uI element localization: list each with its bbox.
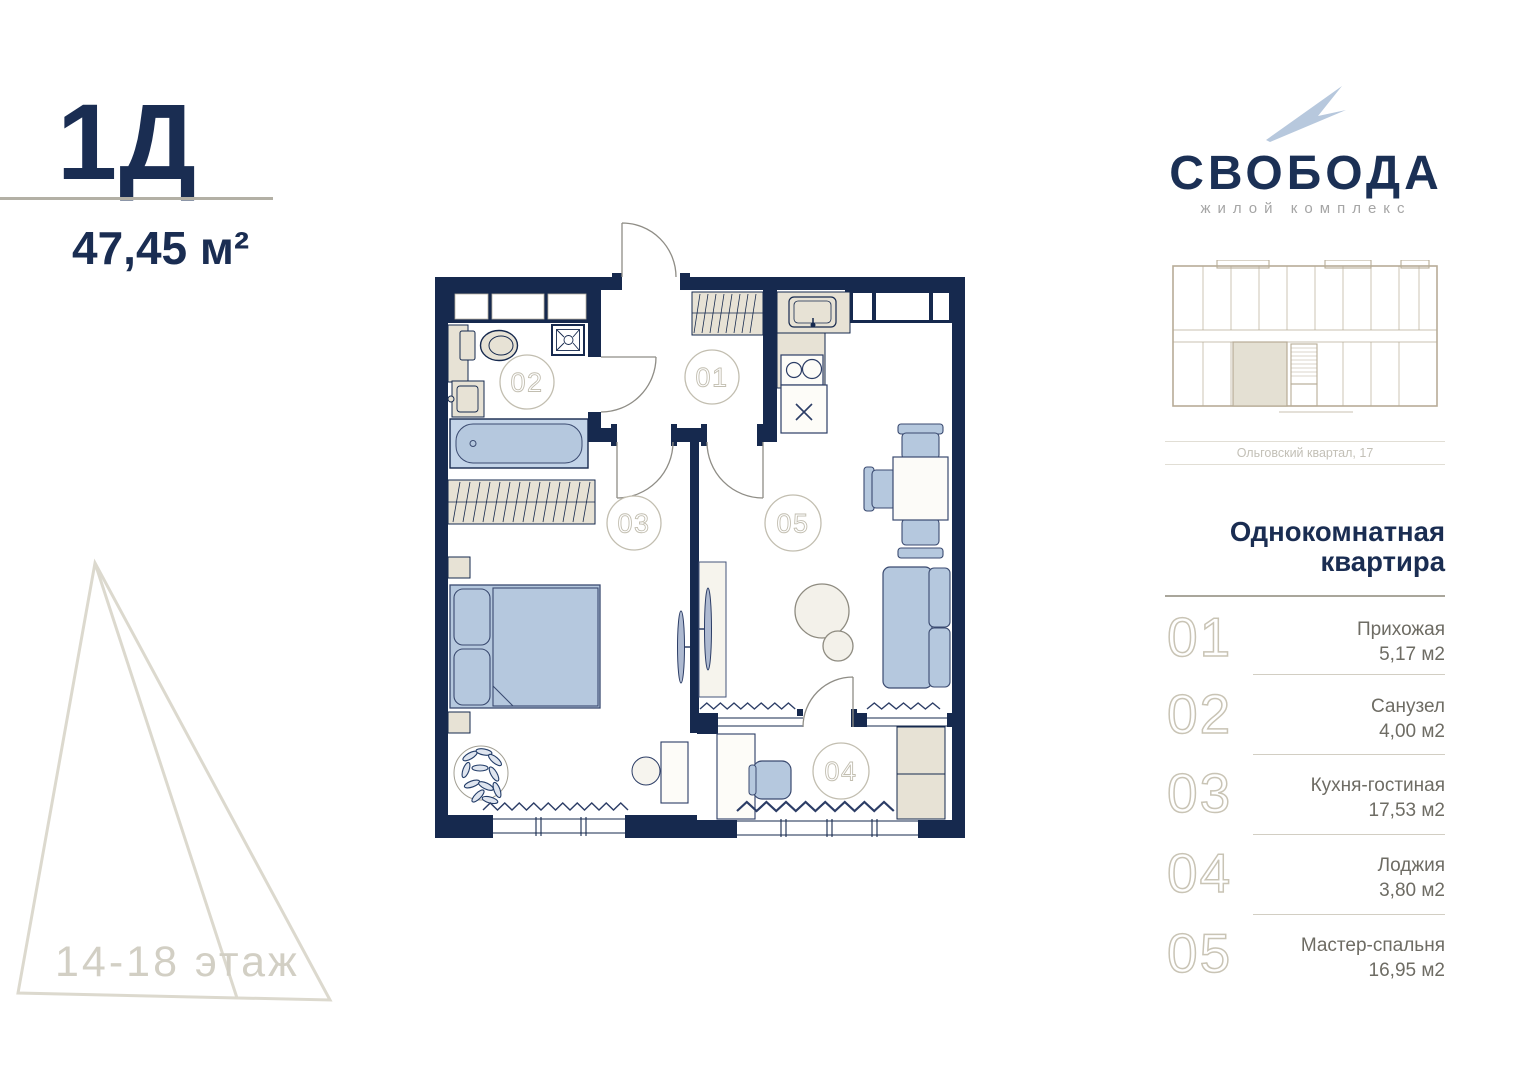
building-address-caption: Ольговский квартал, 17 bbox=[1165, 446, 1445, 460]
room-number: 04 bbox=[1167, 844, 1232, 902]
room-separator bbox=[1253, 834, 1445, 835]
highlighted-unit bbox=[1233, 342, 1287, 406]
plan-label-02: 02 bbox=[510, 368, 543, 398]
flat-plan-flyer: 1Д 47,45 м² 14-18 этаж СВОБОДА жилой ком… bbox=[0, 0, 1527, 1080]
room-area: 4,00 м2 bbox=[1371, 719, 1445, 744]
room-area: 16,95 м2 bbox=[1301, 958, 1445, 983]
tv-wall bbox=[678, 562, 727, 697]
logo-title: СВОБОДА bbox=[1165, 146, 1447, 201]
room-area: 17,53 м2 bbox=[1311, 798, 1445, 823]
room-name: Мастер-спальня bbox=[1301, 933, 1445, 958]
room-name: Санузел bbox=[1371, 694, 1445, 719]
room-area: 5,17 м2 bbox=[1357, 642, 1445, 667]
plan-label-05: 05 bbox=[776, 509, 809, 539]
room-separator bbox=[1253, 674, 1445, 675]
room-row-01: 01 Прихожая 5,17 м2 bbox=[1165, 608, 1445, 684]
logo-subtitle: жилой комплекс bbox=[1165, 200, 1447, 217]
room-number: 05 bbox=[1167, 924, 1232, 982]
apartment-type-heading: Однокомнатная квартира bbox=[1165, 517, 1445, 577]
living-room-furniture bbox=[795, 424, 950, 688]
room-row-04: 04 Лоджия 3,80 м2 bbox=[1165, 844, 1445, 920]
plan-label-01: 01 bbox=[695, 363, 728, 393]
room-separator bbox=[1253, 754, 1445, 755]
logo-swoosh-icon bbox=[1256, 84, 1352, 144]
unit-total-area: 47,45 м² bbox=[72, 221, 249, 275]
room-number: 03 bbox=[1167, 764, 1232, 822]
building-key-plan bbox=[1163, 260, 1447, 418]
caption-bottom-line bbox=[1165, 464, 1445, 465]
room-area: 3,80 м2 bbox=[1378, 878, 1445, 903]
room-row-02: 02 Санузел 4,00 м2 bbox=[1165, 685, 1445, 761]
unit-code: 1Д bbox=[57, 88, 198, 196]
room-number: 02 bbox=[1167, 685, 1232, 743]
room-row-03: 03 Кухня-гостиная 17,53 м2 bbox=[1165, 764, 1445, 840]
room-name: Кухня-гостиная bbox=[1311, 773, 1445, 798]
plan-label-04: 04 bbox=[824, 757, 857, 787]
room-name: Лоджия bbox=[1378, 853, 1445, 878]
room-name: Прихожая bbox=[1357, 617, 1445, 642]
apartment-type-line2: квартира bbox=[1165, 547, 1445, 577]
room-number: 01 bbox=[1167, 608, 1232, 666]
apartment-type-line1: Однокомнатная bbox=[1165, 517, 1445, 547]
floor-range-label: 14-18 этаж bbox=[55, 938, 300, 987]
unit-code-divider bbox=[0, 197, 273, 200]
room-row-05: 05 Мастер-спальня 16,95 м2 bbox=[1165, 924, 1445, 1000]
caption-top-line bbox=[1165, 441, 1445, 442]
plan-label-03: 03 bbox=[617, 509, 650, 539]
apartment-heading-rule bbox=[1165, 595, 1445, 597]
room-separator bbox=[1253, 914, 1445, 915]
plant bbox=[454, 746, 508, 805]
apartment-floor-plan: 01 02 03 04 05 bbox=[420, 215, 980, 860]
